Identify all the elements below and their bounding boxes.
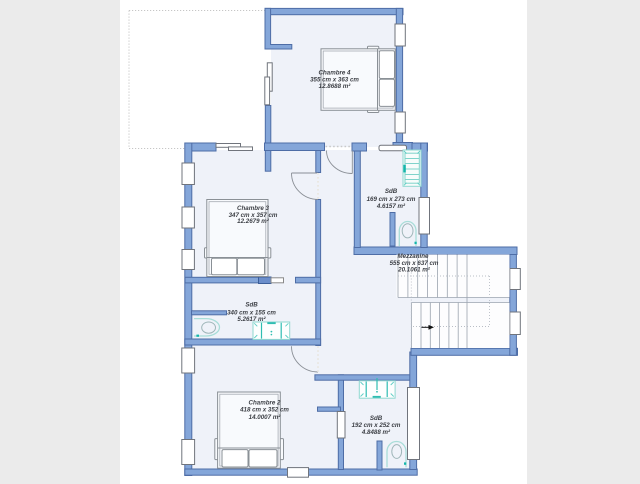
svg-text:Chambre 3: Chambre 3 [237, 205, 270, 212]
svg-text:Mezzanine: Mezzanine [398, 253, 430, 260]
svg-text:169 cm x 273 cm: 169 cm x 273 cm [367, 196, 416, 203]
svg-text:SdB: SdB [245, 301, 258, 308]
svg-text:5.2617 m²: 5.2617 m² [237, 316, 266, 323]
svg-text:4.6157 m²: 4.6157 m² [376, 203, 406, 210]
svg-text:4.8488 m²: 4.8488 m² [361, 429, 391, 436]
svg-text:418 cm x 352 cm: 418 cm x 352 cm [239, 407, 289, 414]
svg-text:Chambre 2: Chambre 2 [249, 399, 282, 406]
svg-text:192 cm x 252 cm: 192 cm x 252 cm [352, 422, 401, 429]
svg-text:12.2679 m²: 12.2679 m² [237, 218, 270, 225]
svg-text:14.0007 m²: 14.0007 m² [249, 414, 282, 421]
svg-text:20.1061 m²: 20.1061 m² [397, 267, 431, 274]
svg-text:SdB: SdB [385, 188, 398, 195]
svg-text:12.8688 m²: 12.8688 m² [319, 83, 352, 90]
svg-text:SdB: SdB [370, 415, 383, 422]
